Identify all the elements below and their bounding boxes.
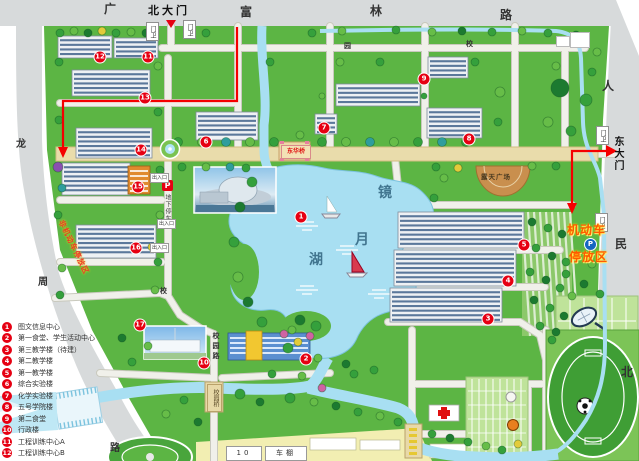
exit-sign-2: 出入口: [157, 219, 176, 229]
guard-house-2: 门卫: [183, 20, 196, 39]
open-air-plaza-label: 露天广场: [481, 174, 511, 181]
south-bridge-label: 校园桥: [207, 384, 222, 412]
legend-number: 10: [2, 425, 12, 435]
legend-label: 第一食堂、学生活动中心: [18, 333, 95, 343]
campus-road-char-west: 校: [160, 288, 167, 295]
legend-label: 行政楼: [18, 425, 39, 435]
lake-char-1: 镜: [378, 186, 392, 200]
motor-parking-label-2: 停放区: [569, 251, 608, 263]
legend-row: 9第二食堂: [2, 413, 132, 425]
road-char-fulin-1: 富: [240, 6, 252, 18]
legend-number: 3: [2, 345, 12, 355]
legend-label: 综合实验楼: [18, 379, 53, 389]
legend-label: 工程训练中心A: [18, 437, 65, 447]
road-char-fulin-2: 林: [370, 5, 382, 17]
legend-row: 12工程训练中心B: [2, 448, 132, 460]
legend-row: 4第二教学楼: [2, 356, 132, 368]
map-tag-large: [570, 32, 590, 48]
north-gate-label: 北大门: [148, 5, 190, 16]
legend-label: 第二教学楼: [18, 356, 53, 366]
building-marker: 15: [133, 182, 144, 193]
campus-road-south-label: 校园路: [212, 332, 219, 362]
building-marker: 4: [503, 276, 514, 287]
road-char-long-1: 龙: [16, 140, 26, 150]
legend-row: 5第一教学楼: [2, 367, 132, 379]
campus-road-char-top-2: 园: [344, 43, 351, 50]
legend-label: 图文信息中心: [18, 322, 60, 332]
map-legend: 1图文信息中心 2第一食堂、学生活动中心 3第三教学楼（待建） 4第二教学楼 5…: [2, 321, 132, 459]
building-marker: 6: [201, 137, 212, 148]
north-gate-marker-icon: [166, 20, 176, 28]
road-char-renmin-3: 北: [621, 366, 633, 378]
building-marker: 11: [143, 52, 154, 63]
lake-char-3: 湖: [309, 253, 323, 267]
building-marker: 5: [519, 240, 530, 251]
campus-road-char-top-1: 校: [466, 41, 473, 48]
legend-number: 1: [2, 322, 12, 332]
legend-number: 2: [2, 333, 12, 343]
legend-label: 第一教学楼: [18, 368, 53, 378]
legend-row: 3第三教学楼（待建）: [2, 344, 132, 356]
building-marker: 12: [95, 52, 106, 63]
lake-char-2: 月: [355, 233, 369, 247]
building-marker: 1: [296, 212, 307, 223]
building-marker: 7: [319, 123, 330, 134]
donghua-bridge-label: 东华桥: [281, 145, 311, 159]
map-tag-small: [556, 36, 570, 47]
road-char-long-2: 周: [38, 278, 48, 288]
exit-sign-1: 出入口: [150, 173, 169, 183]
road-char-renmin-1: 人: [602, 80, 614, 92]
legend-row: 2第一食堂、学生活动中心: [2, 333, 132, 345]
legend-row: 10行政楼: [2, 425, 132, 437]
guard-house-1: 门卫: [146, 22, 159, 41]
motor-parking-label-1: 机动车: [567, 224, 606, 236]
building-marker: 8: [464, 134, 475, 145]
exit-sign-3: 出入口: [150, 243, 169, 253]
building-marker: 3: [483, 314, 494, 325]
legend-number: 12: [2, 448, 12, 458]
legend-label: 第二食堂: [18, 414, 46, 424]
building-marker: 10: [199, 358, 210, 369]
legend-number: 11: [2, 437, 12, 447]
legend-label: 第三教学楼（待建）: [18, 345, 81, 355]
legend-number: 9: [2, 414, 12, 424]
legend-label: 五号学院楼: [18, 402, 53, 412]
legend-row: 8五号学院楼: [2, 402, 132, 414]
guard-house-3: 门卫: [596, 126, 609, 145]
campus-map: 广 富 林 路 人 民 北 龙 周 路 北大门 东大门 门卫 门卫 门卫 门卫 …: [0, 0, 639, 461]
legend-number: 4: [2, 356, 12, 366]
legend-row: 6综合实验楼: [2, 379, 132, 391]
legend-number: 8: [2, 402, 12, 412]
bike-shed-box: 车棚: [265, 446, 307, 461]
legend-row: 1图文信息中心: [2, 321, 132, 333]
building-marker: 9: [419, 74, 430, 85]
road-char-renmin-2: 民: [615, 238, 627, 250]
building-marker: 13: [140, 93, 151, 104]
building-marker: 17: [135, 320, 146, 331]
building-marker: 2: [301, 354, 312, 365]
fountain-roundabout: [161, 140, 180, 159]
road-char-fulin-3: 路: [500, 9, 512, 21]
road-char-guang: 广: [104, 3, 116, 15]
legend-label: 化学实验楼: [18, 391, 53, 401]
legend-number: 7: [2, 391, 12, 401]
building-marker: 14: [136, 145, 147, 156]
shed-number-box: 10: [226, 446, 262, 461]
legend-number: 5: [2, 368, 12, 378]
east-gate-label: 东大门: [612, 136, 622, 172]
building-marker: 16: [131, 243, 142, 254]
legend-label: 工程训练中心B: [18, 448, 65, 458]
legend-number: 6: [2, 379, 12, 389]
legend-row: 11工程训练中心A: [2, 436, 132, 448]
legend-row: 7化学实验楼: [2, 390, 132, 402]
